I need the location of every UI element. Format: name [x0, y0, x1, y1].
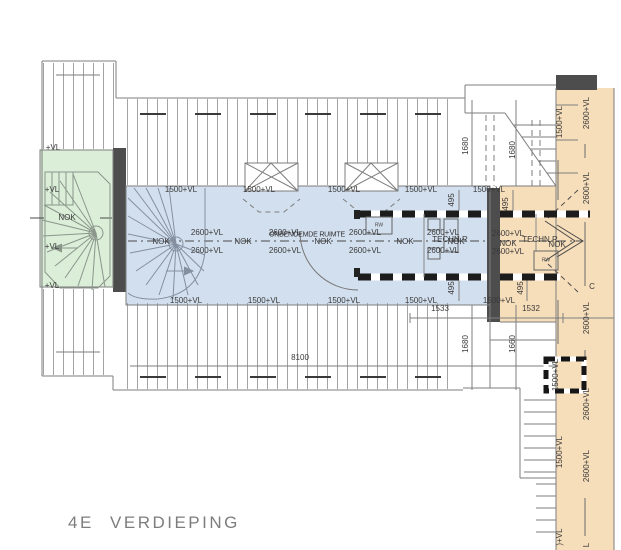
label-1500vl: 1500+VL	[243, 186, 275, 194]
nok-label: NOK	[58, 214, 75, 222]
dim-495: 495	[448, 281, 456, 294]
dim-1533: 1533	[431, 305, 449, 313]
label-1500vl-rot: 1500+VL	[552, 359, 560, 391]
label-1500vl: 1500+VL	[483, 297, 515, 305]
label-2600vl: 2600+VL	[349, 247, 381, 255]
equipment-label-rw: RW	[375, 224, 383, 229]
label-1500vl: 1500+VL	[473, 186, 505, 194]
label-2600vl-rot: 2600+VL	[583, 388, 591, 420]
label-2600vl: 2600+VL	[269, 247, 301, 255]
nok-label: NOK	[396, 238, 413, 246]
label-2600vl: 2600+VL	[191, 229, 223, 237]
room-label-tech: TECHN.R	[432, 236, 468, 244]
room-label-unnamed: ONBENOEMDE RUIMTE	[269, 232, 345, 239]
label-l-partial-rot: L	[583, 543, 591, 547]
dim-1532: 1532	[522, 305, 540, 313]
label-2600vl-rot: 2600+VL	[583, 172, 591, 204]
dim-1680: 1680	[462, 335, 470, 353]
dim-1660: 1660	[509, 335, 517, 353]
vl-label: +VL	[45, 243, 59, 251]
label-1500vl: 1500+VL	[248, 297, 280, 305]
nok-label: NOK	[548, 241, 565, 249]
nok-label: NOK	[314, 238, 331, 246]
nok-label: NOK	[234, 238, 251, 246]
dim-495: 495	[502, 197, 510, 210]
label-2600vl-rot: 2600+VL	[583, 302, 591, 334]
label-2600vl: 2600+VL	[492, 230, 524, 238]
dim-495: 495	[517, 281, 525, 294]
vl-label: +VL	[45, 186, 59, 194]
label-2600vl-rot: 2600+VL	[583, 97, 591, 129]
dim-1680: 1680	[462, 137, 470, 155]
vl-label: +VL	[46, 144, 60, 152]
label-2600vl: 2600+VL	[349, 229, 381, 237]
label-1500vl-rot: 1500+VL	[556, 436, 564, 468]
label-1500vl: 1500+VL	[328, 186, 360, 194]
nok-label: NOK	[499, 240, 516, 248]
section-marker-c: C	[589, 283, 595, 291]
dim-495: 495	[448, 193, 456, 206]
label-2600vl: 2600+VL	[427, 247, 459, 255]
nok-label: NOK	[152, 238, 169, 246]
drawing-title: 4E VERDIEPING	[68, 513, 240, 533]
label-vl-partial-rot: )+VL	[556, 528, 564, 545]
floor-plan-canvas: +VL +VL NOK +VL +VL 1500+VL 1500+VL 1500…	[0, 0, 621, 550]
label-1500vl: 1500+VL	[165, 186, 197, 194]
label-2600vl-rot: 2600+VL	[583, 450, 591, 482]
dim-8100: 8100	[291, 354, 309, 362]
equipment-label-rw: RW	[542, 259, 550, 264]
label-1500vl: 1500+VL	[405, 186, 437, 194]
label-1500vl-rot: 1500+VL	[556, 106, 564, 138]
label-2600vl: 2600+VL	[191, 247, 223, 255]
label-2600vl: 2600+VL	[492, 248, 524, 256]
label-1500vl: 1500+VL	[328, 297, 360, 305]
floor-plan-drawing	[0, 0, 621, 550]
dim-1680: 1680	[509, 141, 517, 159]
label-1500vl: 1500+VL	[170, 297, 202, 305]
vl-label: +VL	[45, 282, 59, 290]
